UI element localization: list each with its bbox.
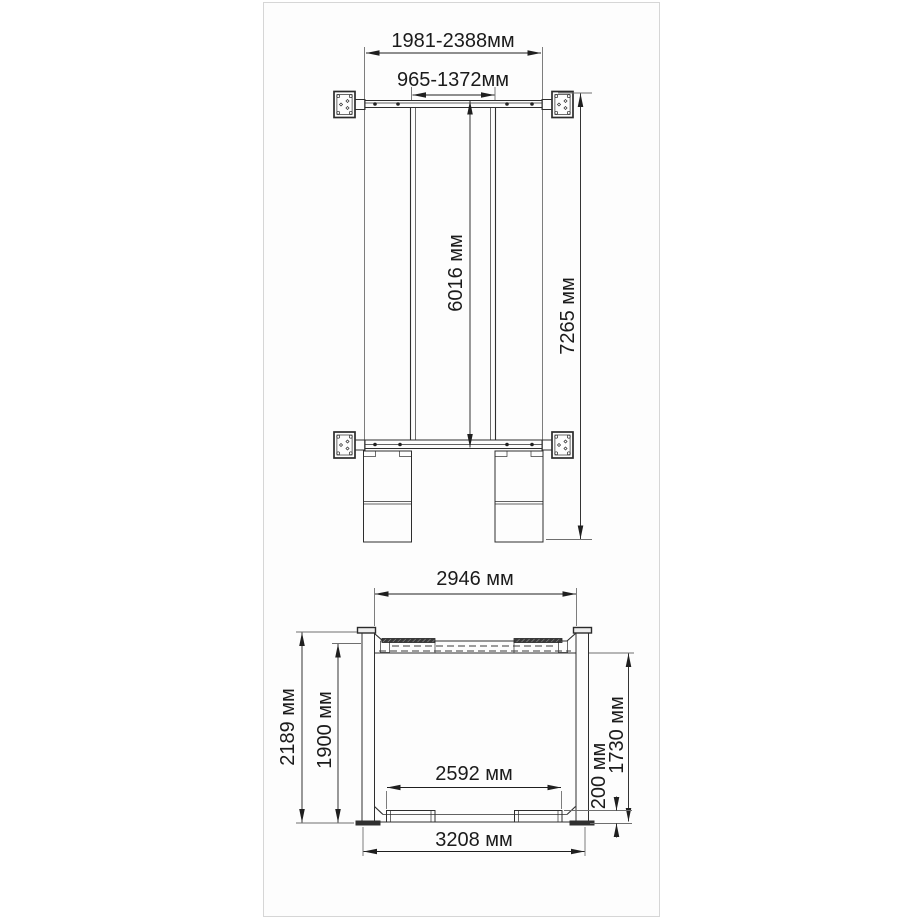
front-floor-pad-left [387, 811, 436, 823]
dim-total-length: 7265 мм [546, 93, 592, 540]
plan-post-bottom-right [552, 432, 573, 458]
front-post-left [362, 628, 375, 822]
dim-pad-span: 2592 мм [387, 763, 562, 809]
dim-label-pad-height: 200 мм [588, 743, 610, 809]
dim-label-inner-width: 965-1372мм [397, 69, 509, 91]
dim-label-total-length: 7265 мм [557, 277, 579, 355]
dim-label-base-width: 3208 мм [435, 829, 513, 851]
dim-inner-width: 965-1372мм [397, 69, 509, 100]
front-post-left-base [356, 821, 381, 826]
plan-top-crossbeam [365, 101, 542, 108]
dim-platform-length: 6016 мм [445, 101, 470, 448]
plan-post-top-left [334, 92, 355, 118]
front-view: 2946 мм 2189 мм 1900 мм 2592 мм [277, 568, 634, 856]
front-top-beam [375, 634, 577, 654]
front-top-beam-pad-left [382, 639, 435, 643]
front-post-right [576, 628, 589, 822]
plan-connector-top-left [355, 100, 365, 110]
front-post-right-cap [574, 628, 592, 634]
dim-outer-width: 1981-2388мм [366, 30, 541, 53]
front-post-left-cap [358, 628, 376, 634]
dim-label-top-beam-span: 2946 мм [436, 568, 514, 590]
front-post-right-base [570, 821, 595, 826]
plan-ramp-left [364, 451, 412, 542]
plan-connector-bottom-right [542, 440, 552, 450]
front-top-beam-pad-right [514, 639, 562, 643]
technical-drawing: 1981-2388мм 965-1372мм 6016 мм 7265 мм [0, 0, 924, 924]
screenshot-root: 1981-2388мм 965-1372мм 6016 мм 7265 мм [0, 0, 924, 924]
dim-top-beam-span: 2946 мм [375, 568, 577, 626]
plan-view: 1981-2388мм 965-1372мм 6016 мм 7265 мм [334, 30, 592, 542]
dim-label-platform-length: 6016 мм [445, 234, 467, 312]
plan-connector-bottom-left [355, 440, 365, 450]
plan-post-top-right [552, 92, 573, 118]
plan-connector-top-right [542, 100, 552, 110]
dim-base-width: 3208 мм [363, 827, 585, 856]
dim-label-clear-height: 1900 мм [314, 691, 336, 769]
plan-bottom-crossbeam [365, 440, 542, 449]
plan-ramp-right [495, 451, 543, 542]
dim-clear-height: 1900 мм [314, 644, 361, 823]
plan-post-bottom-left [334, 432, 355, 458]
dim-label-overall-height: 2189 мм [277, 688, 299, 766]
front-floor-beam [375, 807, 577, 823]
front-floor-pad-right [515, 811, 563, 823]
dim-label-pad-span: 2592 мм [435, 763, 513, 785]
dim-label-outer-width: 1981-2388мм [391, 30, 514, 52]
